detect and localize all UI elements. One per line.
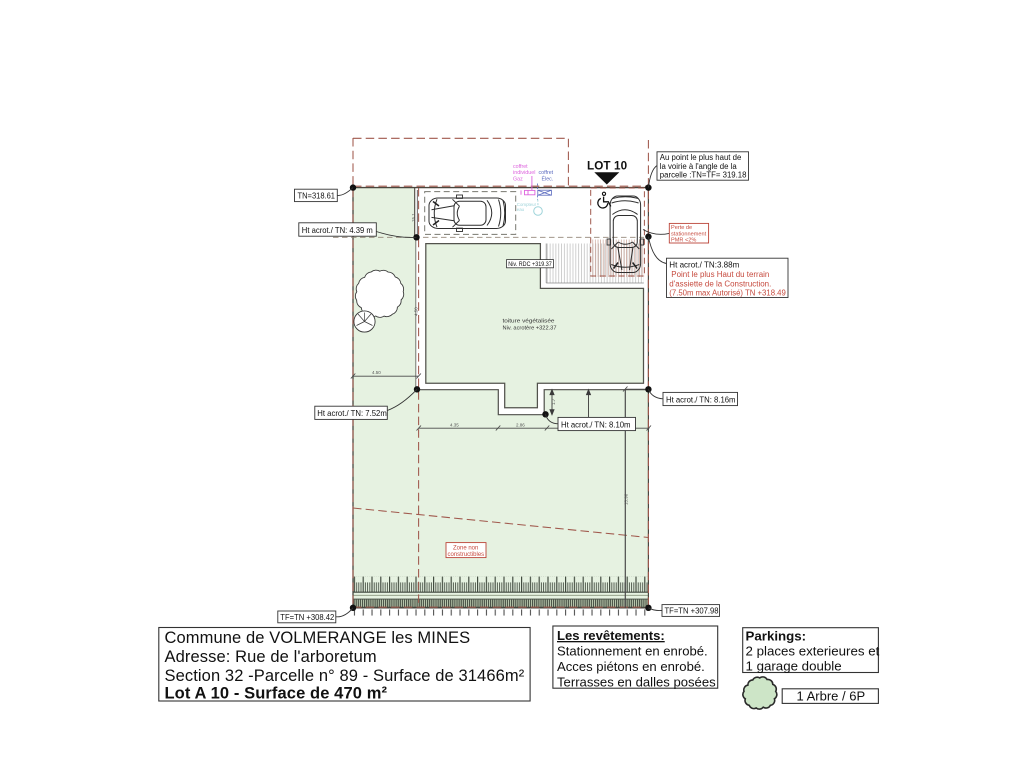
svg-text:Zone non: Zone non	[453, 545, 478, 551]
svg-text:15.96: 15.96	[624, 493, 629, 505]
svg-text:Adresse: Rue de l'arboretum: Adresse: Rue de l'arboretum	[165, 648, 377, 666]
svg-text:2 places exterieures et: 2 places exterieures et	[746, 644, 880, 659]
svg-text:PMR <2%: PMR <2%	[671, 237, 696, 243]
svg-text:TN=318.61: TN=318.61	[298, 191, 336, 201]
svg-text:Ht acrot./ TN: 8.16m: Ht acrot./ TN: 8.16m	[666, 394, 736, 404]
svg-text:Niv. acrotère +322.37: Niv. acrotère +322.37	[503, 326, 557, 332]
svg-text:eau: eau	[517, 207, 525, 212]
svg-text:1 Arbre / 6P: 1 Arbre / 6P	[797, 689, 866, 704]
svg-text:Parkings:: Parkings:	[746, 629, 807, 644]
svg-text:Perte de: Perte de	[671, 225, 692, 231]
svg-text:Ht acrot./ TN: 4.39 m: Ht acrot./ TN: 4.39 m	[302, 225, 373, 235]
svg-text:TF=TN +307.98: TF=TN +307.98	[665, 606, 719, 616]
svg-text:Niv. RDC +319.37: Niv. RDC +319.37	[508, 262, 552, 268]
svg-text:Acces piétons en enrobé.: Acces piétons en enrobé.	[557, 659, 705, 674]
svg-text:Section 32 -Parcelle n° 89 - S: Section 32 -Parcelle n° 89 - Surface de …	[165, 667, 525, 685]
svg-text:Lot A 10 - Surface de 470 m²: Lot A 10 - Surface de 470 m²	[165, 685, 388, 703]
svg-text:TF=TN +308.42: TF=TN +308.42	[280, 612, 334, 622]
svg-text:4.50: 4.50	[372, 370, 381, 375]
svg-text:Les revêtements:: Les revêtements:	[557, 628, 665, 643]
svg-text:toiture végétalisée: toiture végétalisée	[503, 319, 555, 325]
svg-text:Ht acrot./ TN:3.88m: Ht acrot./ TN:3.88m	[669, 259, 739, 269]
svg-text:Point le plus Haut du terrain: Point le plus Haut du terrain	[671, 270, 769, 279]
svg-text:Stationnement en enrobé.: Stationnement en enrobé.	[557, 644, 708, 659]
svg-text:1.7: 1.7	[551, 398, 556, 405]
svg-text:Terrasses en dalles posées: Terrasses en dalles posées	[557, 675, 716, 690]
svg-text:d'assiette de la Construction.: d'assiette de la Construction.	[669, 279, 771, 288]
svg-text:4.35: 4.35	[450, 423, 459, 428]
svg-text:Gaz: Gaz	[513, 177, 523, 183]
svg-text:15.1: 15.1	[411, 213, 416, 222]
svg-text:individuel: individuel	[513, 170, 536, 176]
svg-text:Ht acrot./ TN: 7.52m: Ht acrot./ TN: 7.52m	[317, 408, 387, 418]
svg-text:Élec.: Élec.	[542, 176, 554, 183]
svg-text:4.50: 4.50	[414, 307, 419, 316]
svg-text:Commune de VOLMERANGE les MINE: Commune de VOLMERANGE les MINES	[165, 629, 471, 647]
svg-text:LOT 10: LOT 10	[587, 159, 628, 172]
svg-text:coffret: coffret	[513, 164, 528, 170]
svg-text:constructibles: constructibles	[448, 552, 485, 558]
svg-text:parcelle :TN=TF= 319.18: parcelle :TN=TF= 319.18	[660, 171, 747, 180]
svg-text:la voirie à l'angle de la: la voirie à l'angle de la	[660, 162, 738, 171]
svg-text:(7.50m max Autorisé) TN +318.: (7.50m max Autorisé) TN +318.49	[669, 289, 786, 298]
svg-text:2.86: 2.86	[516, 423, 525, 428]
svg-text:Au point le plus haut de: Au point le plus haut de	[660, 153, 742, 162]
svg-text:Ht acrot./ TN: 8.10m: Ht acrot./ TN: 8.10m	[561, 419, 631, 429]
svg-text:1 garage double: 1 garage double	[746, 659, 842, 674]
svg-text:coffret: coffret	[539, 170, 554, 176]
